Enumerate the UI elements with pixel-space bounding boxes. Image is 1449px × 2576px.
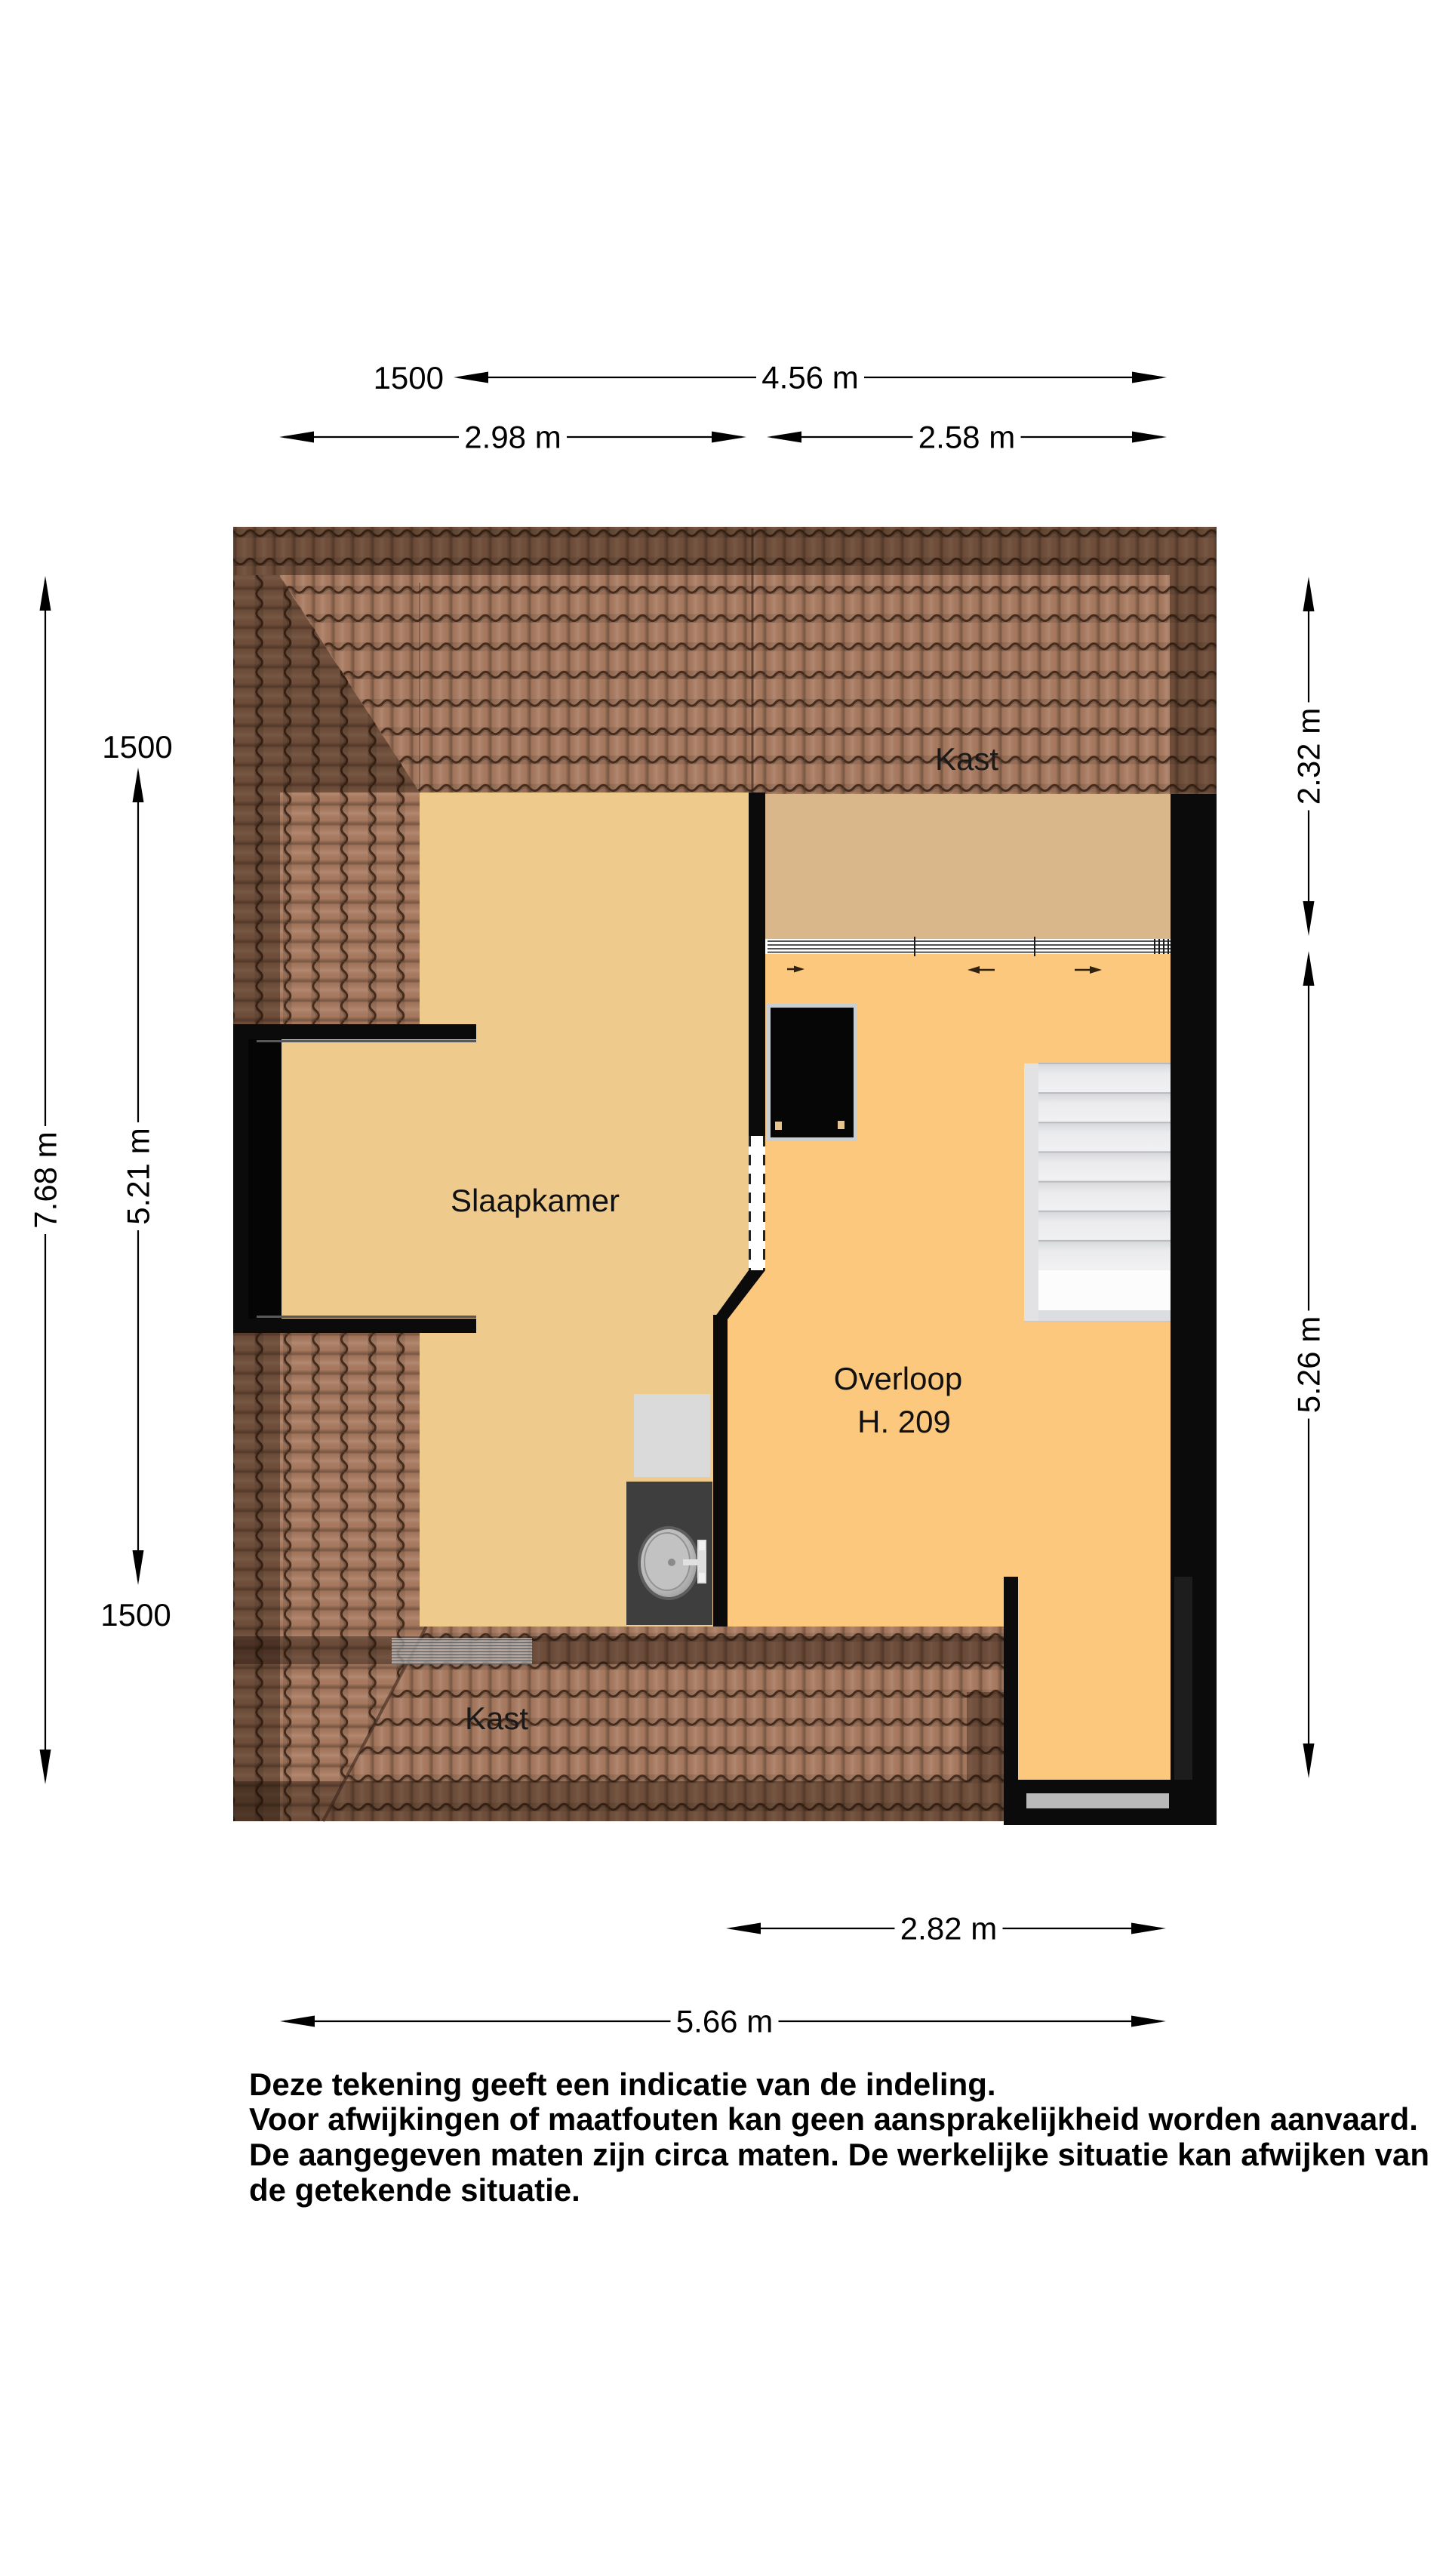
svg-text:2.32 m: 2.32 m [1291, 708, 1326, 805]
svg-text:Slaapkamer: Slaapkamer [451, 1183, 620, 1218]
svg-text:H. 209: H. 209 [857, 1404, 951, 1439]
svg-text:2.98 m: 2.98 m [464, 419, 561, 454]
svg-text:De aangegeven maten zijn circa: De aangegeven maten zijn circa maten. De… [249, 2137, 1429, 2172]
svg-text:Kast: Kast [935, 741, 998, 777]
svg-text:5.66 m: 5.66 m [676, 2003, 773, 2039]
svg-text:2.82 m: 2.82 m [900, 1910, 997, 1946]
svg-text:5.26 m: 5.26 m [1291, 1316, 1326, 1413]
svg-text:de getekende situatie.: de getekende situatie. [249, 2172, 580, 2208]
svg-text:Kast: Kast [465, 1700, 528, 1736]
svg-text:Deze tekening geeft een indica: Deze tekening geeft een indicatie van de… [249, 2067, 996, 2102]
svg-text:1500: 1500 [100, 1597, 171, 1633]
svg-text:5.21 m: 5.21 m [120, 1128, 155, 1224]
svg-text:4.56 m: 4.56 m [761, 359, 858, 395]
svg-text:1500: 1500 [102, 729, 172, 765]
svg-text:1500: 1500 [374, 360, 444, 395]
svg-text:Overloop: Overloop [834, 1361, 962, 1396]
svg-text:Voor afwijkingen of maatfoute: Voor afwijkingen of maatfouten kan geen … [249, 2101, 1418, 2137]
svg-text:7.68 m: 7.68 m [27, 1131, 63, 1228]
svg-text:2.58 m: 2.58 m [918, 419, 1015, 454]
